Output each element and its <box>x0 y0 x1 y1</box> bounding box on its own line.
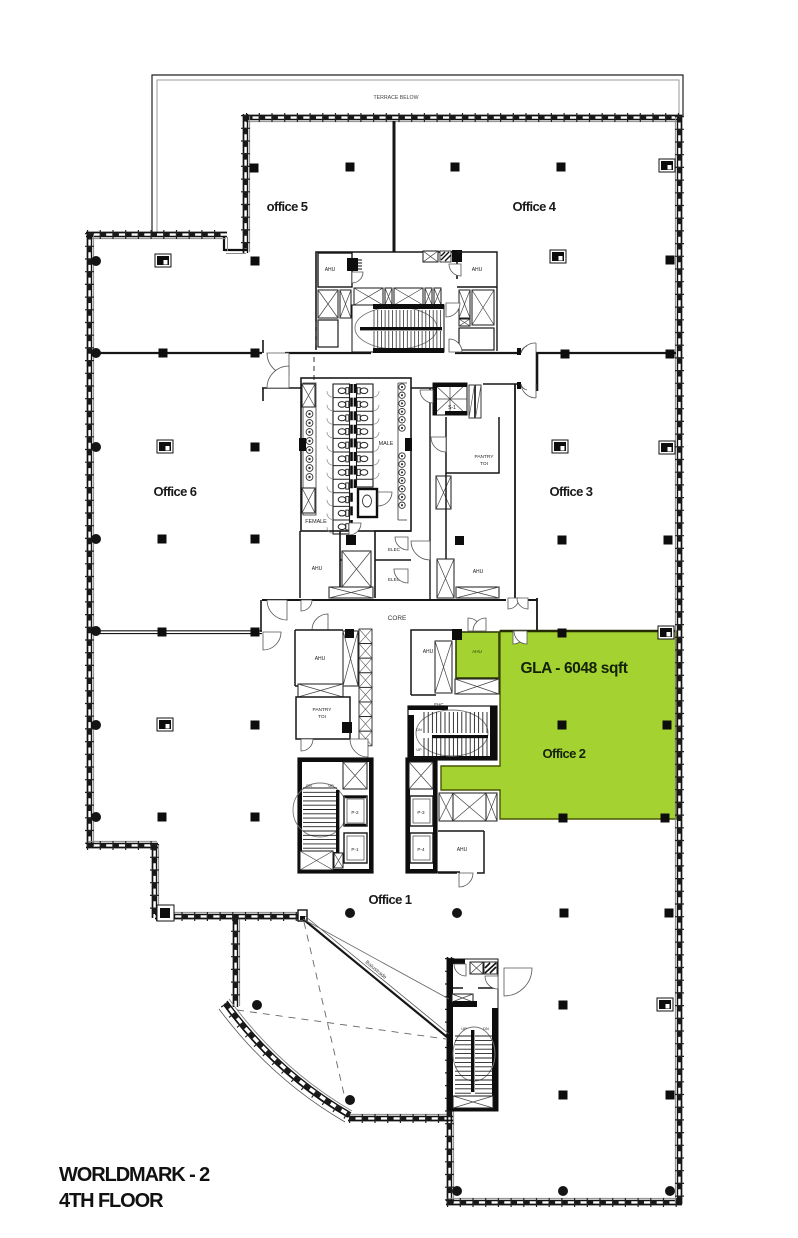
svg-text:AHU: AHU <box>423 649 434 655</box>
svg-text:AHU: AHU <box>312 566 323 572</box>
svg-text:Office 2: Office 2 <box>543 746 586 761</box>
svg-text:Office 3: Office 3 <box>550 484 593 499</box>
svg-text:PANTRY: PANTRY <box>474 454 494 460</box>
svg-text:P-1: P-1 <box>351 847 359 852</box>
svg-text:Office 1: Office 1 <box>369 892 412 907</box>
svg-text:P-2: P-2 <box>351 810 359 815</box>
svg-text:AHU: AHU <box>472 267 483 273</box>
svg-text:UP: UP <box>461 1027 467 1031</box>
svg-text:office 5: office 5 <box>267 199 308 214</box>
svg-text:UP: UP <box>328 784 334 788</box>
svg-text:P-4: P-4 <box>417 847 425 852</box>
svg-text:AHU: AHU <box>472 649 482 654</box>
svg-text:DN: DN <box>306 784 312 788</box>
svg-text:TERRACE BELOW: TERRACE BELOW <box>374 95 419 101</box>
svg-text:ELEC: ELEC <box>388 547 401 552</box>
svg-text:Office 6: Office 6 <box>154 484 197 499</box>
svg-text:AHU: AHU <box>473 569 484 575</box>
svg-text:PANTRY: PANTRY <box>312 707 332 713</box>
svg-text:GLA - 6048 sqft: GLA - 6048 sqft <box>520 660 627 677</box>
svg-text:TOI: TOI <box>318 714 326 720</box>
svg-text:AHU: AHU <box>315 656 326 662</box>
svg-text:WORLDMARK - 2: WORLDMARK - 2 <box>59 1164 210 1186</box>
svg-text:CORE: CORE <box>388 615 406 622</box>
svg-text:4TH FLOOR: 4TH FLOOR <box>59 1190 164 1212</box>
svg-text:AHU: AHU <box>325 267 336 273</box>
svg-text:UP: UP <box>416 748 422 752</box>
svg-text:TOI: TOI <box>480 461 488 467</box>
svg-text:MALE: MALE <box>379 441 394 447</box>
svg-text:S-1: S-1 <box>448 405 456 411</box>
svg-text:DN: DN <box>483 1027 489 1031</box>
svg-text:AHU: AHU <box>457 847 468 853</box>
svg-text:FEMALE: FEMALE <box>305 519 327 525</box>
svg-text:DN: DN <box>416 728 422 732</box>
svg-text:Office 4: Office 4 <box>513 199 557 214</box>
svg-text:P-3: P-3 <box>417 810 425 815</box>
